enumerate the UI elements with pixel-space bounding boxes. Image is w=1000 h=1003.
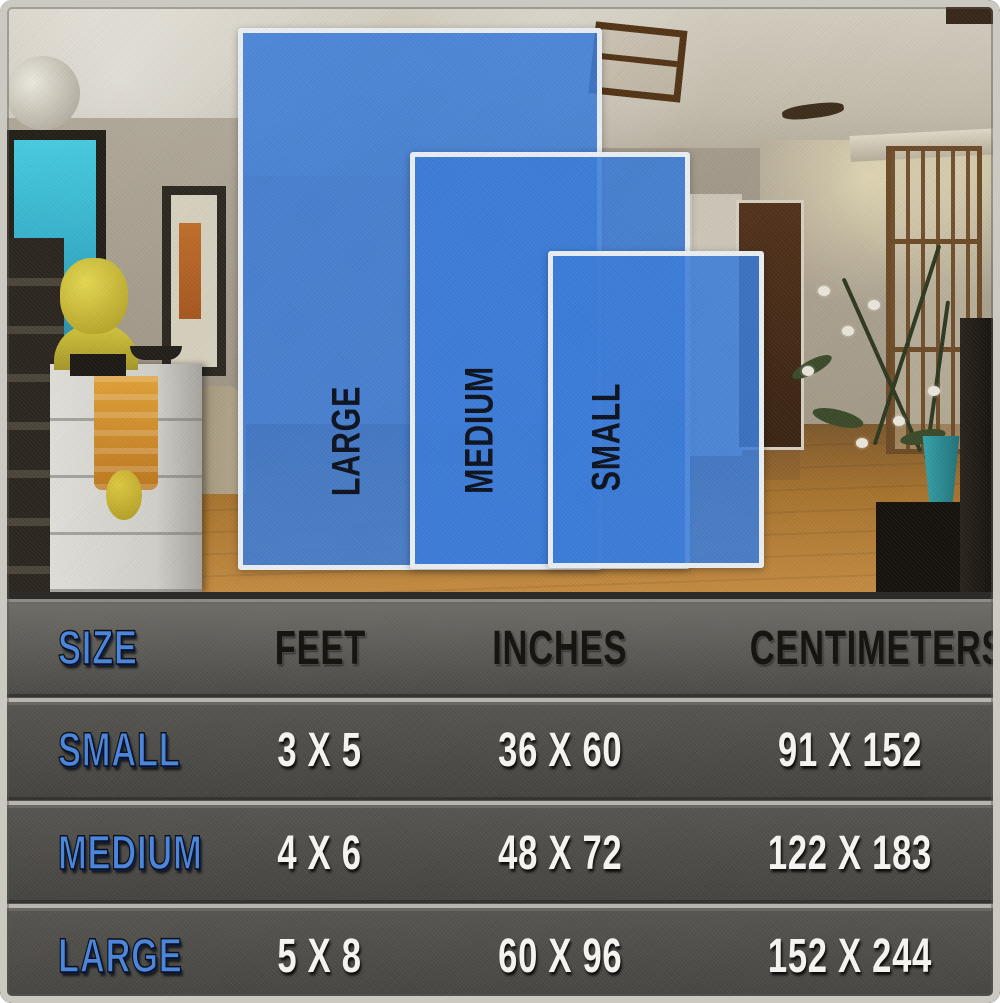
rug-overlay-small: SMALL: [548, 251, 764, 568]
cell-size: MEDIUM: [0, 830, 220, 878]
rug-size-chart-image: LARGE MEDIUM SMALL SIZE FEET INCHES CENT…: [0, 0, 1000, 1003]
header-feet: FEET: [220, 625, 420, 673]
fixture-bar: [599, 53, 677, 67]
header-centimeters: CENTIMETERS: [700, 625, 1000, 673]
room-photo: LARGE MEDIUM SMALL: [0, 0, 1000, 592]
row-divider: [0, 900, 1000, 911]
cell-size: LARGE: [0, 933, 220, 981]
table-top-groove: [0, 592, 1000, 604]
header-inches: INCHES: [420, 625, 700, 673]
cell-inches: 60 X 96: [420, 933, 700, 981]
table-row-large: LARGE 5 X 8 60 X 96 152 X 244: [0, 911, 1000, 1003]
row-divider: [0, 694, 1000, 705]
sphere-lamp: [6, 56, 80, 130]
orchid-flower: [868, 300, 880, 310]
cell-feet: 3 X 5: [220, 727, 420, 775]
size-table: SIZE FEET INCHES CENTIMETERS SMALL 3 X 5…: [0, 592, 1000, 1003]
cell-inches: 48 X 72: [420, 830, 700, 878]
corner-fixture: [946, 0, 1000, 24]
buddha-statue-head: [60, 258, 128, 334]
cell-size: SMALL: [0, 727, 220, 775]
orchid-flower: [893, 416, 905, 426]
cell-centimeters: 91 X 152: [700, 727, 1000, 775]
lattice-bar: [891, 239, 977, 244]
cell-centimeters: 152 X 244: [700, 933, 1000, 981]
decor-bowl: [130, 346, 182, 360]
ceiling-fixture: [588, 21, 687, 102]
yellow-decor-ball: [106, 470, 142, 520]
table-row-small: SMALL 3 X 5 36 X 60 91 X 152: [0, 705, 1000, 797]
orchid-flower: [842, 326, 854, 336]
header-size: SIZE: [0, 625, 220, 673]
orchid-flower: [818, 286, 830, 296]
cell-inches: 36 X 60: [420, 727, 700, 775]
orchid-flower: [802, 366, 814, 376]
cell-feet: 5 X 8: [220, 933, 420, 981]
cell-feet: 4 X 6: [220, 830, 420, 878]
table-row-medium: MEDIUM 4 X 6 48 X 72 122 X 183: [0, 808, 1000, 900]
picture-art: [179, 223, 201, 319]
row-divider: [0, 797, 1000, 808]
rug-label-medium: MEDIUM: [458, 366, 503, 494]
cell-centimeters: 122 X 183: [700, 830, 1000, 878]
rug-label-large: LARGE: [325, 386, 370, 496]
orchid-flower: [856, 438, 868, 448]
orchid-flower: [928, 386, 940, 396]
rug-label-small: SMALL: [585, 383, 630, 492]
statue-base: [70, 354, 126, 376]
dark-column: [960, 318, 1000, 592]
table-header-row: SIZE FEET INCHES CENTIMETERS: [0, 604, 1000, 694]
